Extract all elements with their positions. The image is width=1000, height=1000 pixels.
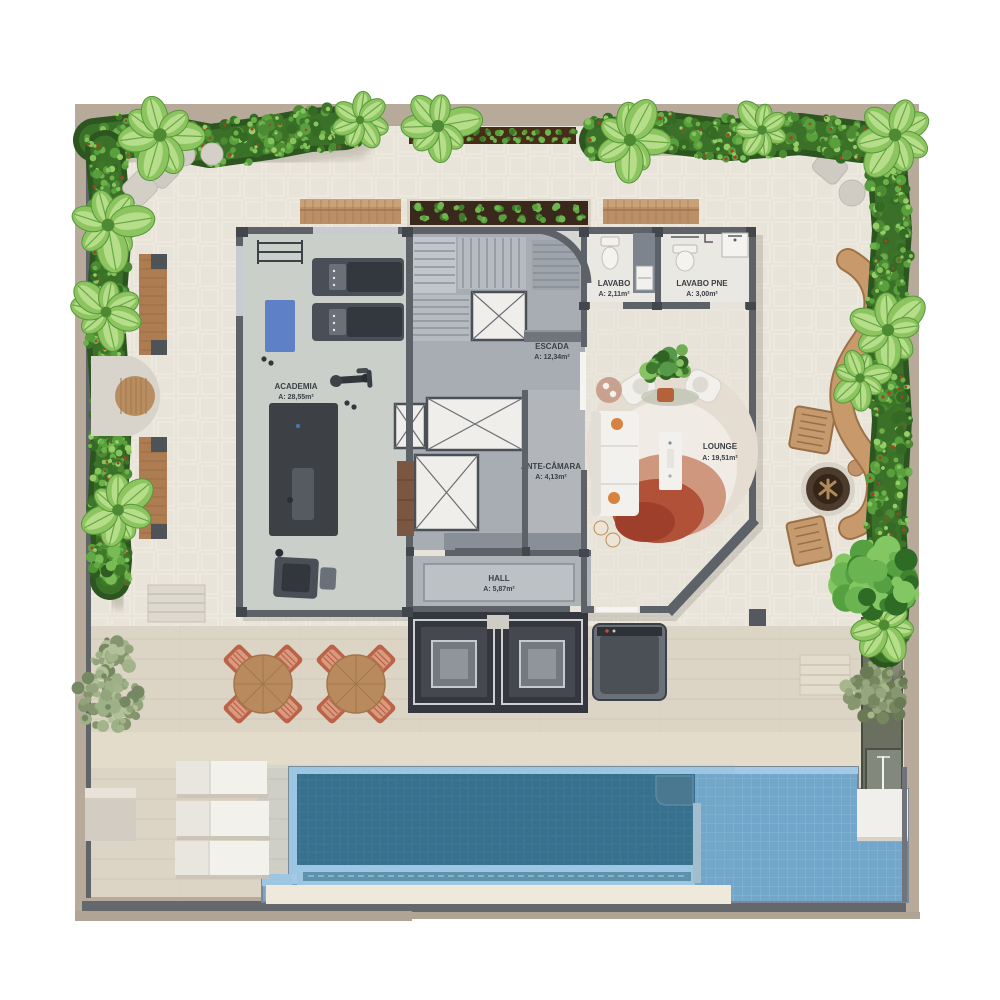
svg-text:ESCADA: ESCADA: [535, 342, 569, 351]
svg-text:A: 2,11m²: A: 2,11m²: [598, 291, 630, 298]
svg-text:LOUNGE: LOUNGE: [703, 442, 738, 451]
svg-text:A: 19,51m²: A: 19,51m²: [702, 455, 738, 462]
svg-text:ANTE-CÂMARA: ANTE-CÂMARA: [521, 462, 581, 471]
svg-text:ACADEMIA: ACADEMIA: [274, 382, 317, 391]
svg-text:A: 3,00m²: A: 3,00m²: [686, 291, 718, 298]
svg-text:A: 4,13m²: A: 4,13m²: [535, 474, 567, 481]
svg-text:A: 12,34m²: A: 12,34m²: [534, 354, 570, 361]
svg-text:HALL: HALL: [488, 574, 509, 583]
svg-text:A: 5,87m²: A: 5,87m²: [483, 586, 515, 593]
svg-text:A: 28,55m²: A: 28,55m²: [278, 394, 314, 401]
svg-text:LAVABO PNE: LAVABO PNE: [676, 279, 728, 288]
svg-text:LAVABO: LAVABO: [598, 279, 631, 288]
